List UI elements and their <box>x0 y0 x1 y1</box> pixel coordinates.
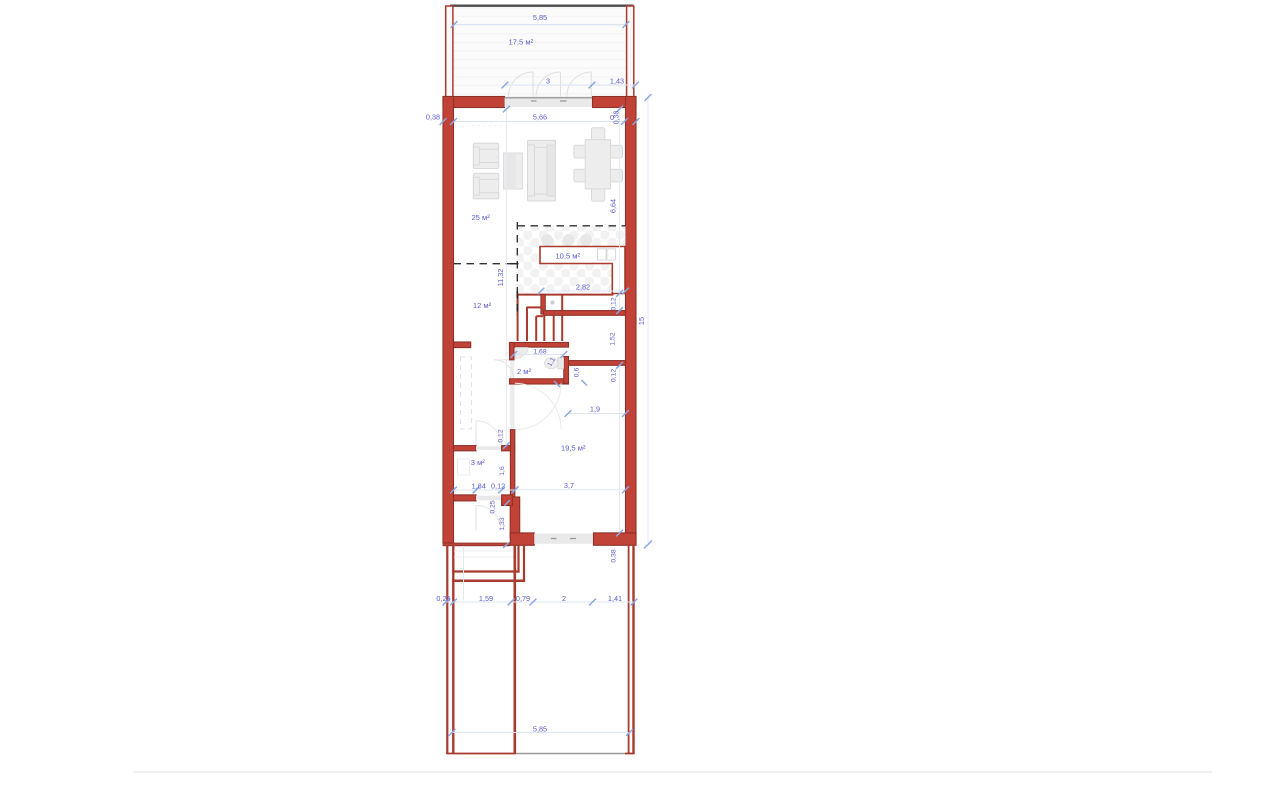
svg-text:1,33: 1,33 <box>499 517 506 530</box>
svg-text:3: 3 <box>546 77 550 86</box>
svg-text:0,12: 0,12 <box>491 482 505 491</box>
svg-text:1,52: 1,52 <box>610 332 617 345</box>
svg-text:5,85: 5,85 <box>533 13 547 22</box>
svg-text:2 м²: 2 м² <box>517 367 532 376</box>
svg-text:25 м²: 25 м² <box>471 213 490 222</box>
svg-text:19,5 м²: 19,5 м² <box>561 443 586 452</box>
svg-text:1,84: 1,84 <box>472 482 486 491</box>
svg-text:0,25: 0,25 <box>436 594 450 603</box>
svg-text:1,9: 1,9 <box>590 405 600 414</box>
svg-text:1,6: 1,6 <box>499 466 506 476</box>
svg-text:0,12: 0,12 <box>610 297 617 310</box>
svg-text:0,12: 0,12 <box>497 429 504 442</box>
svg-text:6,64: 6,64 <box>608 199 617 213</box>
svg-text:15: 15 <box>637 317 646 325</box>
svg-text:0,25: 0,25 <box>490 500 497 513</box>
svg-text:11,32: 11,32 <box>496 269 505 287</box>
svg-text:1,43: 1,43 <box>610 77 624 86</box>
svg-text:1,41: 1,41 <box>608 594 622 603</box>
svg-text:17,5 м²: 17,5 м² <box>508 38 533 47</box>
svg-text:2,82: 2,82 <box>576 283 590 292</box>
svg-text:1,59: 1,59 <box>479 594 493 603</box>
svg-text:0,38: 0,38 <box>611 549 618 562</box>
svg-text:3 м²: 3 м² <box>471 458 486 467</box>
svg-text:5,66: 5,66 <box>533 113 547 122</box>
svg-text:0,79: 0,79 <box>516 594 530 603</box>
svg-text:2: 2 <box>562 594 566 603</box>
svg-text:5,85: 5,85 <box>533 725 547 734</box>
svg-text:0,38: 0,38 <box>614 111 621 125</box>
svg-text:1,68: 1,68 <box>533 348 546 355</box>
svg-text:0,38: 0,38 <box>426 113 440 122</box>
svg-text:12 м²: 12 м² <box>473 301 492 310</box>
svg-text:0,12: 0,12 <box>610 369 617 382</box>
svg-text:0,6: 0,6 <box>574 368 581 378</box>
svg-text:3,7: 3,7 <box>564 481 574 490</box>
svg-text:10,5 м²: 10,5 м² <box>555 252 580 261</box>
